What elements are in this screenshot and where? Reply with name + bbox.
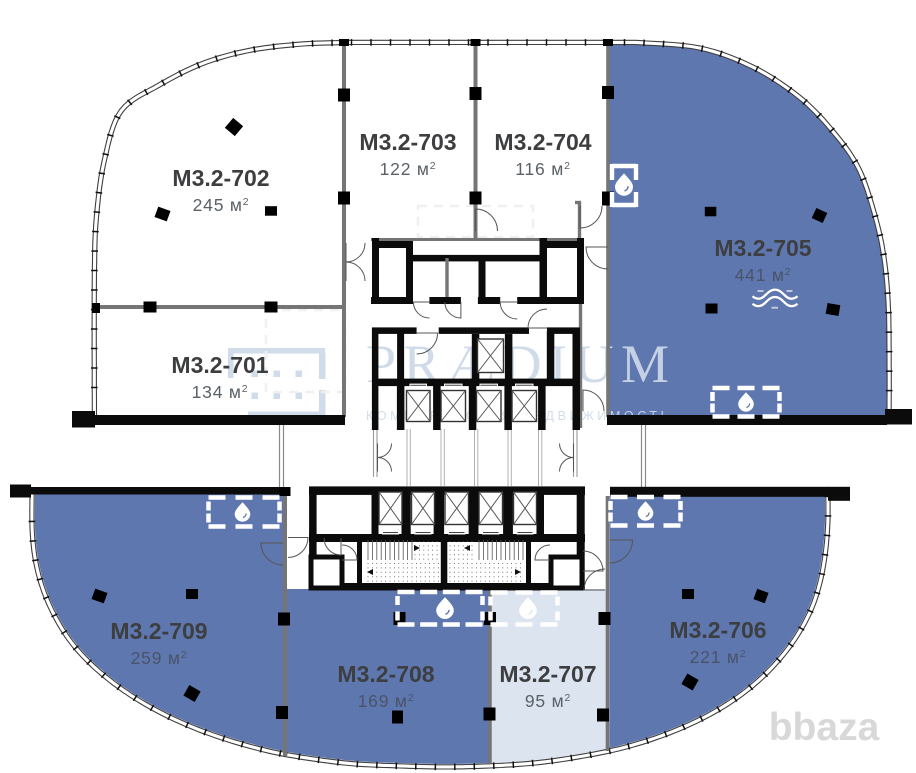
svg-text:bbaza: bbaza — [769, 706, 880, 749]
svg-text:221 м2: 221 м2 — [690, 647, 747, 667]
svg-text:245 м2: 245 м2 — [193, 195, 250, 215]
svg-text:169 м2: 169 м2 — [358, 691, 415, 711]
svg-text:M3.2-706: M3.2-706 — [669, 617, 766, 643]
svg-text:M3.2-704: M3.2-704 — [494, 129, 591, 155]
svg-text:M3.2-707: M3.2-707 — [499, 661, 596, 687]
svg-text:95 м2: 95 м2 — [525, 691, 571, 711]
svg-text:134 м2: 134 м2 — [192, 382, 249, 402]
svg-text:M3.2-703: M3.2-703 — [359, 129, 456, 155]
svg-text:441 м2: 441 м2 — [735, 265, 792, 285]
svg-text:116 м2: 116 м2 — [515, 159, 570, 179]
svg-text:M3.2-701: M3.2-701 — [171, 352, 268, 378]
svg-text:259 м2: 259 м2 — [131, 648, 188, 668]
svg-text:M3.2-709: M3.2-709 — [110, 618, 207, 644]
svg-text:M3.2-702: M3.2-702 — [172, 165, 269, 191]
svg-text:M3.2-705: M3.2-705 — [714, 235, 811, 261]
svg-text:M3.2-708: M3.2-708 — [337, 661, 434, 687]
svg-text:122 м2: 122 м2 — [380, 159, 437, 179]
